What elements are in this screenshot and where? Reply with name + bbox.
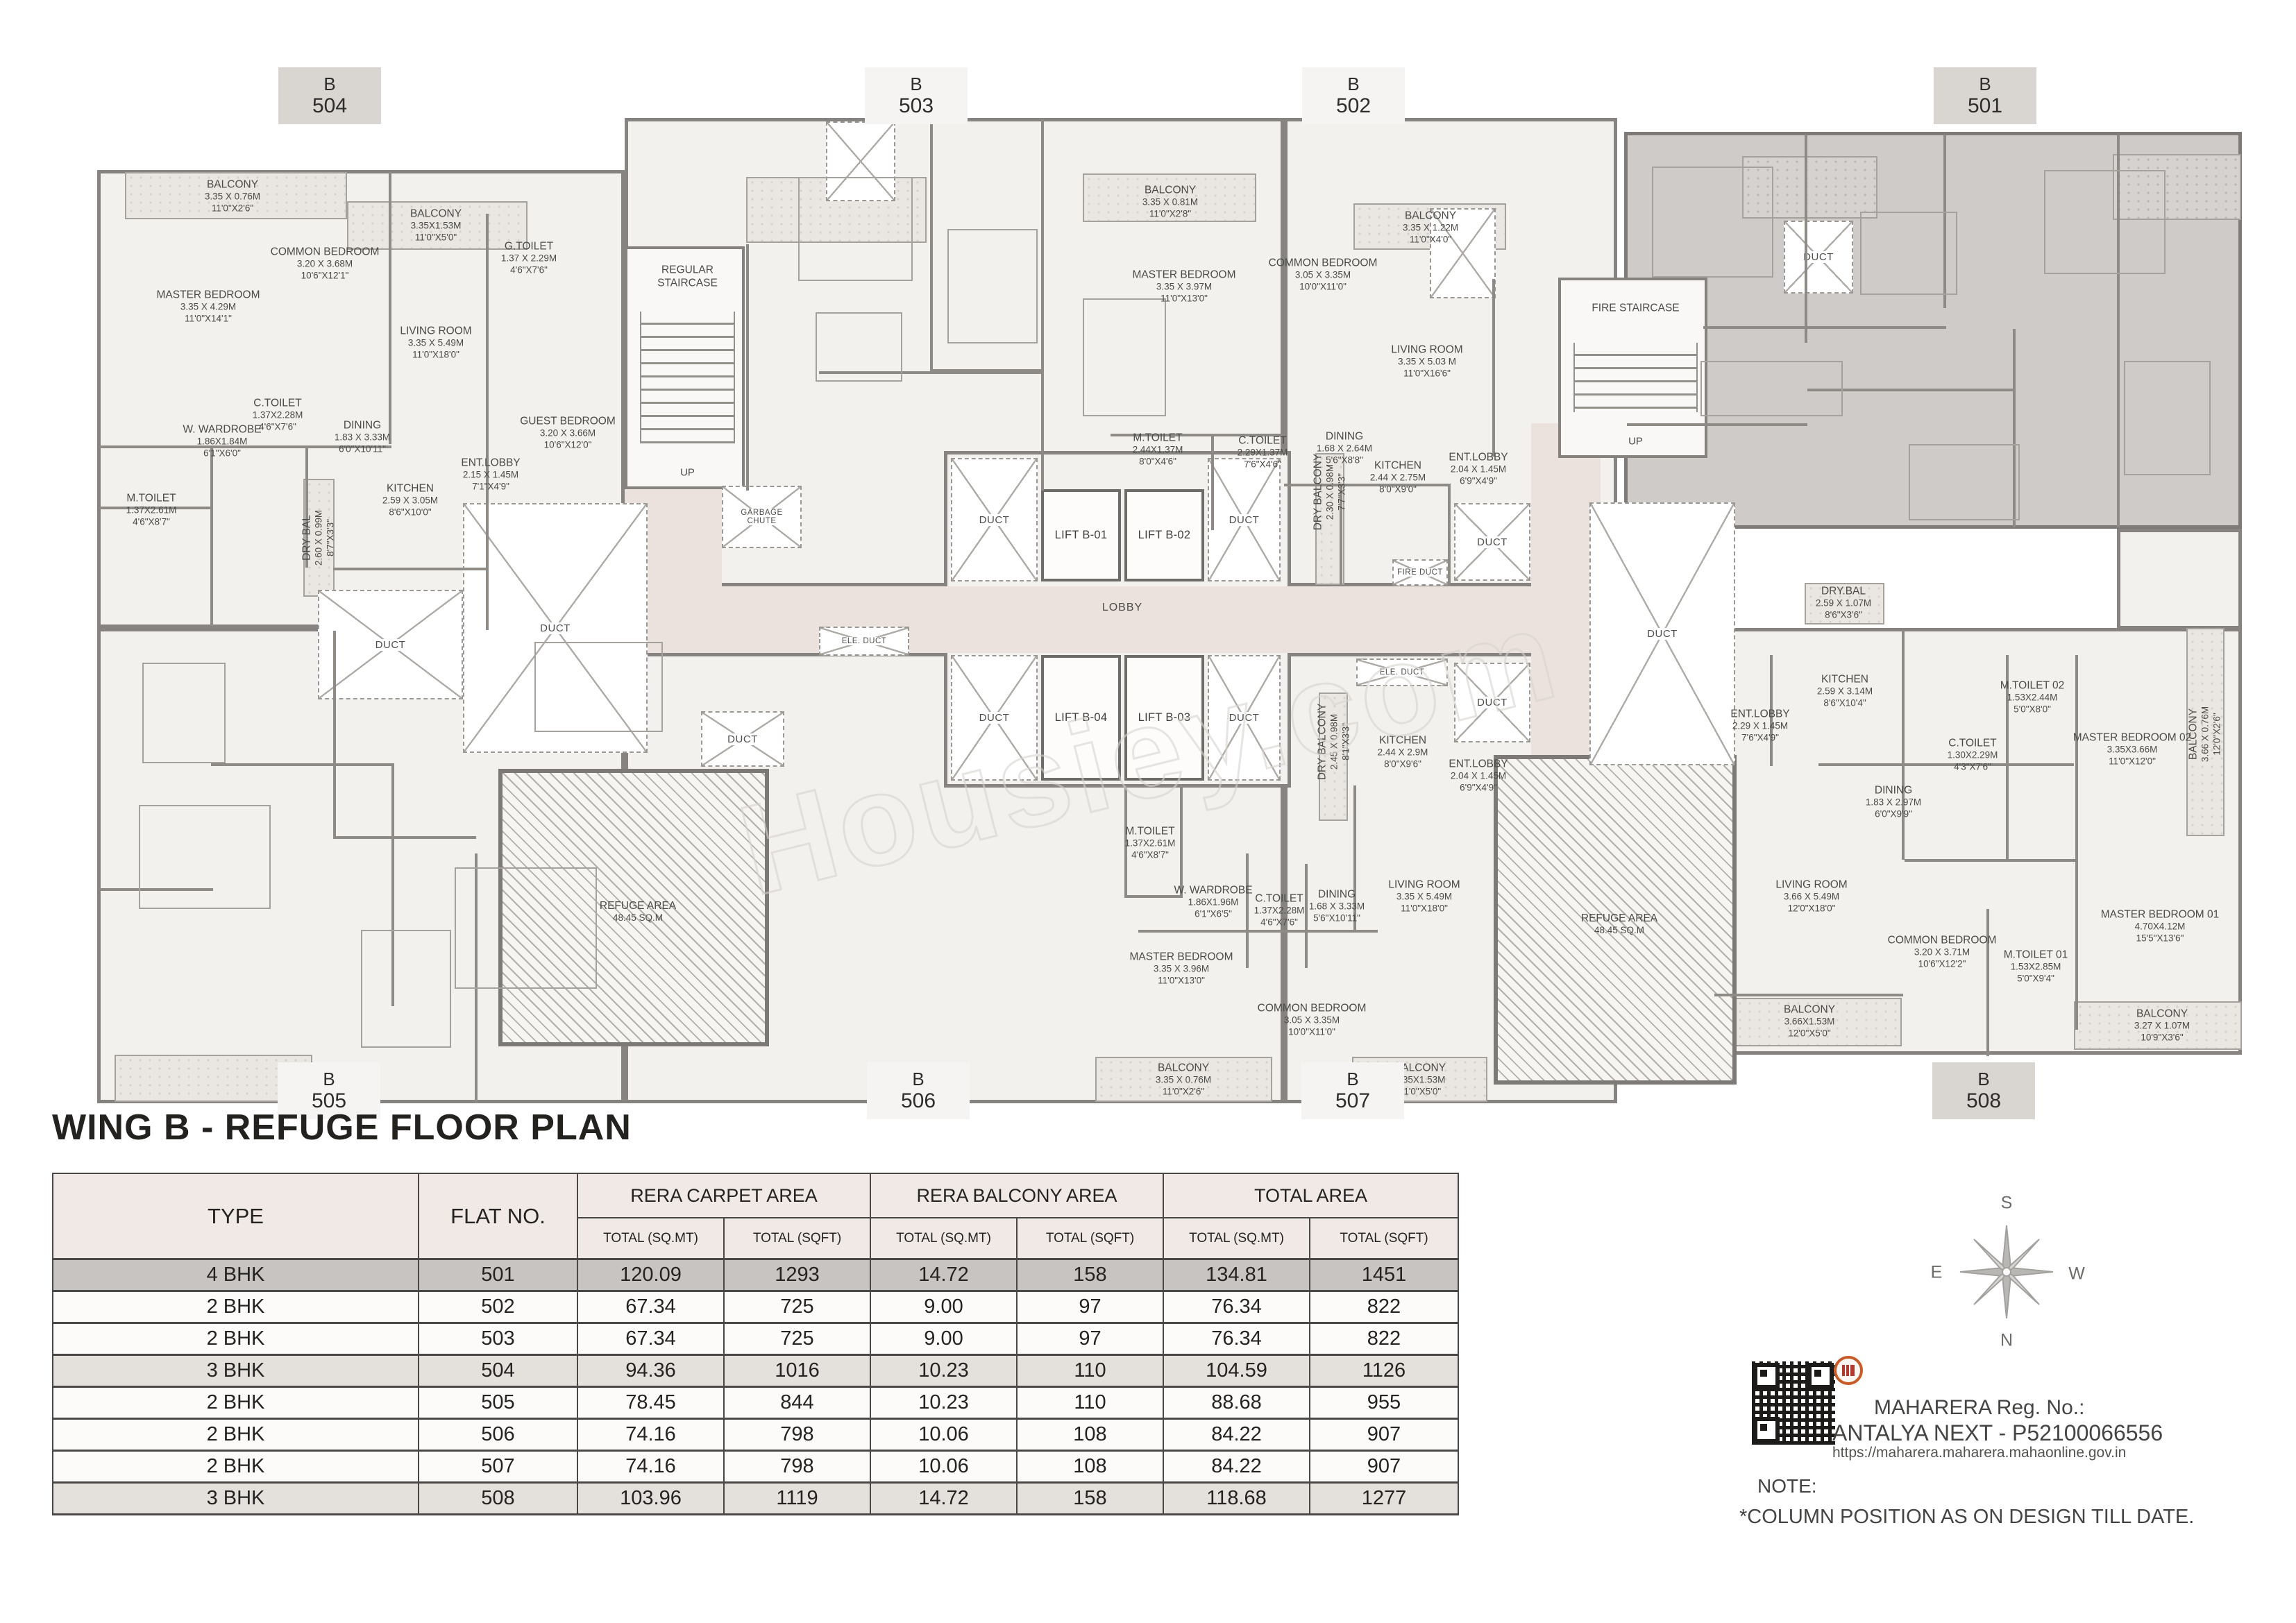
cell-area-value: 120.09: [577, 1259, 724, 1291]
wall-segment: [1805, 135, 1807, 343]
table-row-flat-502: 2 BHK50267.347259.009776.34822: [53, 1291, 1458, 1323]
wall-segment: [389, 172, 391, 444]
unit-marker-503: B503: [865, 67, 968, 124]
cell-area-value: 1277: [1310, 1483, 1458, 1515]
garbage-chute: GARBAGE CHUTE: [722, 486, 802, 548]
room-label-master-bedroom: MASTER BEDROOM3.35 X 3.96M11'0"X13'0": [1130, 950, 1233, 987]
wall-segment: [1041, 119, 1044, 491]
room-label-living-room: LIVING ROOM3.35 X 5.49M11'0"X18'0": [1388, 878, 1460, 915]
table-row-flat-506: 2 BHK50674.1679810.0610884.22907: [53, 1419, 1458, 1451]
cell-area-value: 1293: [724, 1259, 870, 1291]
note-label: NOTE:: [1757, 1475, 1817, 1497]
room-label-living-room: LIVING ROOM3.35 X 5.03 M11'0"X16'6": [1391, 343, 1462, 380]
compass-left: E: [1931, 1263, 1943, 1283]
maharera-seal-icon: [1834, 1356, 1863, 1385]
cell-type: 2 BHK: [53, 1451, 419, 1483]
wall-segment: [333, 568, 487, 570]
cell-area-value: 10.06: [870, 1419, 1017, 1451]
sub-header-sqmt: TOTAL (SQ.MT): [577, 1218, 724, 1259]
cell-area-value: 14.72: [870, 1259, 1017, 1291]
room-label-w-wardrobe: W. WARDROBE1.86X1.84M6'1"X6'0": [183, 423, 261, 459]
table-row-flat-507: 2 BHK50774.1679810.0610884.22907: [53, 1451, 1458, 1483]
cell-area-value: 108: [1017, 1419, 1163, 1451]
room-label-dining: DINING1.68 X 3.33M5'6"X10'11": [1309, 887, 1365, 924]
staircase-treads: [640, 312, 735, 443]
unit-marker-507: B507: [1301, 1062, 1404, 1119]
cell-area-value: 907: [1310, 1451, 1458, 1483]
refuge-area-label: REFUGE AREA48.45 SQ.M: [600, 899, 676, 924]
staircase-up-label: UP: [1628, 436, 1643, 448]
cell-area-value: 74.16: [577, 1419, 724, 1451]
room-label-master-bedroom-02: MASTER BEDROOM 023.35X3.66M11'0"X12'0": [2073, 731, 2192, 767]
room-label-m-toilet-02: M.TOILET 021.53X2.44M5'0"X8'0": [2000, 679, 2064, 715]
area-table: TYPEFLAT NO.RERA CARPET AREARERA BALCONY…: [52, 1173, 1459, 1515]
cell-type: 2 BHK: [53, 1323, 419, 1355]
cell-area-value: 798: [724, 1419, 870, 1451]
staircase-label: REGULAR STAIRCASE: [636, 264, 740, 291]
cell-flat-no: 505: [419, 1387, 577, 1419]
room-label-balcony: BALCONY3.35 X 0.76M11'0"X2'6": [1156, 1061, 1211, 1098]
cell-type: 2 BHK: [53, 1291, 419, 1323]
wall-segment: [1138, 930, 1378, 933]
room-label-common-bedroom: COMMON BEDROOM3.05 X 3.35M10'0"X11'0": [1269, 256, 1378, 293]
wall-segment: [1305, 864, 1308, 968]
duct-shaft: DUCT: [318, 590, 463, 699]
furniture-outline: [1083, 298, 1166, 416]
wall-segment: [1818, 763, 2074, 766]
duct-shaft: DUCT: [951, 458, 1038, 581]
duct-shaft: DUCT: [1454, 503, 1530, 581]
cell-area-value: 110: [1017, 1387, 1163, 1419]
cell-area-value: 74.16: [577, 1451, 724, 1483]
cell-area-value: 76.34: [1163, 1323, 1310, 1355]
duct-shaft: DUCT: [701, 711, 784, 767]
wall-segment: [1986, 909, 1989, 1056]
unit-block: [2117, 529, 2242, 629]
cell-area-value: 84.22: [1163, 1419, 1310, 1451]
furniture-outline: [798, 177, 913, 281]
qr-finder-icon: [1807, 1363, 1834, 1389]
wall-segment: [1211, 436, 1214, 530]
group-header-2: TOTAL AREA: [1163, 1173, 1458, 1218]
sub-header-sqft: TOTAL (SQFT): [1017, 1218, 1163, 1259]
lift-b-02: LIFT B-02: [1124, 489, 1204, 581]
col-header-flat-no: FLAT NO.: [419, 1173, 577, 1259]
cell-area-value: 1119: [724, 1483, 870, 1515]
room-label-dining: DINING1.83 X 3.33M6'0"X10'11": [335, 418, 390, 455]
room-label-ent-lobby: ENT.LOBBY2.15 X 1.45M7'1"X4'9": [461, 456, 520, 493]
table-row-flat-508: 3 BHK508103.96111914.72158118.681277: [53, 1483, 1458, 1515]
cell-area-value: 10.23: [870, 1387, 1017, 1419]
room-label-balcony: BALCONY3.35 X 0.76M11'0"X2'6": [205, 178, 260, 214]
cell-area-value: 84.22: [1163, 1451, 1310, 1483]
furniture-outline: [1909, 444, 2020, 520]
sub-header-sqmt: TOTAL (SQ.MT): [1163, 1218, 1310, 1259]
room-label-m-toilet-01: M.TOILET 011.53X2.85M5'0"X9'4": [2004, 948, 2068, 985]
wall-segment: [746, 244, 749, 491]
staircase: FIRE STAIRCASEUP: [1558, 278, 1707, 458]
wall-segment: [1703, 326, 1946, 329]
cell-area-value: 104.59: [1163, 1355, 1310, 1387]
furniture-outline: [139, 805, 271, 909]
lift-b-01: LIFT B-01: [1041, 489, 1121, 581]
cell-area-value: 88.68: [1163, 1387, 1310, 1419]
room-label-common-bedroom: COMMON BEDROOM3.20 X 3.68M10'6"X12'1": [271, 245, 380, 282]
room-label-c-toilet: C.TOILET1.37X2.28M4'6"X7'6": [253, 396, 303, 433]
cell-flat-no: 501: [419, 1259, 577, 1291]
furniture-outline: [142, 663, 226, 763]
cell-area-value: 798: [724, 1451, 870, 1483]
cell-area-value: 103.96: [577, 1483, 724, 1515]
cell-type: 3 BHK: [53, 1355, 419, 1387]
duct-shaft: DUCT: [1784, 221, 1853, 294]
cell-area-value: 725: [724, 1291, 870, 1323]
col-header-type: TYPE: [53, 1173, 419, 1259]
cell-area-value: 97: [1017, 1323, 1163, 1355]
room-label-kitchen: KITCHEN2.44 X 2.75M8'0"X9'0": [1370, 459, 1426, 495]
cell-area-value: 1016: [724, 1355, 870, 1387]
room-label-ent-lobby: ENT.LOBBY2.04 X 1.45M6'9"X4'9": [1449, 757, 1508, 794]
room-label-balcony: BALCONY3.27 X 1.07M10'9"X3'6": [2134, 1007, 2190, 1044]
wall-segment: [1902, 631, 1905, 860]
cell-type: 2 BHK: [53, 1419, 419, 1451]
maharera-reg-value: ANTALYA NEXT - P52100066556: [1832, 1420, 2163, 1446]
table-row-flat-503: 2 BHK50367.347259.009776.34822: [53, 1323, 1458, 1355]
cell-area-value: 10.06: [870, 1451, 1017, 1483]
wall-segment: [486, 214, 489, 445]
furniture-outline: [534, 642, 663, 732]
unit-marker-501: B501: [1934, 67, 2036, 124]
furniture-outline: [361, 930, 451, 1048]
table-row-flat-505: 2 BHK50578.4584410.2311088.68955: [53, 1387, 1458, 1419]
room-label-c-toilet: C.TOILET1.37X2.28M4'6"X7'6": [1254, 892, 1305, 928]
label-lobby: LOBBY: [1102, 602, 1142, 614]
room-label-ent-lobby: ENT.LOBBY2.29 X 1.45M7'6"X4'9": [1730, 707, 1789, 744]
cell-flat-no: 508: [419, 1483, 577, 1515]
cell-flat-no: 504: [419, 1355, 577, 1387]
fire-duct-shaft: FIRE DUCT: [1392, 559, 1448, 586]
room-label-balcony: BALCONY3.35X1.53M11'0"X5'0": [410, 207, 462, 244]
cell-area-value: 78.45: [577, 1387, 724, 1419]
compass-top: S: [2001, 1193, 2013, 1214]
page-title: WING B - REFUGE FLOOR PLAN: [52, 1107, 632, 1148]
furniture-outline: [1652, 167, 1773, 278]
cell-type: 4 BHK: [53, 1259, 419, 1291]
floor-plan: REFUGE AREA48.45 SQ.MREFUGE AREA48.45 SQ…: [0, 0, 2296, 1124]
furniture-outline: [455, 867, 597, 989]
wall-segment: [210, 445, 213, 626]
wall-segment: [1714, 994, 1903, 996]
cell-flat-no: 503: [419, 1323, 577, 1355]
furniture-outline: [2044, 170, 2166, 274]
group-header-1: RERA BALCONY AREA: [870, 1173, 1163, 1218]
cell-area-value: 67.34: [577, 1291, 724, 1323]
staircase-treads: [1573, 343, 1698, 412]
cell-area-value: 10.23: [870, 1355, 1017, 1387]
wall-segment: [1448, 486, 1451, 586]
wall-segment: [2075, 655, 2078, 1030]
wall-segment: [930, 369, 1043, 372]
furniture-outline: [816, 312, 902, 382]
table-row-flat-501: 4 BHK501120.09129314.72158134.811451: [53, 1259, 1458, 1291]
room-label-ent-lobby: ENT.LOBBY2.04 X 1.45M6'9"X4'9": [1449, 450, 1508, 487]
staircase-label: FIRE STAIRCASE: [1584, 301, 1688, 314]
cell-area-value: 725: [724, 1323, 870, 1355]
room-label-balcony: BALCONY3.35 X 0.81M11'0"X2'8": [1142, 183, 1198, 220]
cell-flat-no: 502: [419, 1291, 577, 1323]
wall-segment: [1905, 859, 2075, 862]
cell-area-value: 822: [1310, 1291, 1458, 1323]
furniture-outline: [1860, 212, 1957, 295]
sub-header-sqft: TOTAL (SQFT): [1310, 1218, 1458, 1259]
room-label-living-room: LIVING ROOM3.66 X 5.49M12'0"X18'0": [1775, 878, 1847, 915]
room-label-balcony: BALCONY3.66 X 0.76M12'0"X2'6": [2186, 706, 2223, 762]
refuge-area: REFUGE AREA48.45 SQ.M: [1494, 755, 1737, 1085]
cell-area-value: 907: [1310, 1419, 1458, 1451]
room-label-c-toilet: C.TOILET1.30X2.29M4'3"X7'6": [1948, 736, 1998, 773]
qr-code: [1749, 1359, 1838, 1447]
wall-segment: [211, 763, 393, 766]
compass: S N E W: [1948, 1213, 2066, 1331]
compass-bottom: N: [2000, 1331, 2013, 1351]
room-label-master-bedroom: MASTER BEDROOM3.35 X 4.29M11'0"X14'1": [157, 288, 260, 325]
sub-header-sqft: TOTAL (SQFT): [724, 1218, 870, 1259]
room-label-w-wardrobe: W. WARDROBE1.86X1.96M6'1"X6'5": [1174, 883, 1252, 920]
compass-rose-icon: [1948, 1213, 2066, 1331]
cell-area-value: 822: [1310, 1323, 1458, 1355]
unit-marker-508: B508: [1932, 1062, 2035, 1119]
room-label-dry-balcony: DRY BALCONY2.30 X 0.98M7'7"X3'3": [1311, 454, 1348, 531]
room-label-balcony: BALCONY3.35 X 1.22M11'0"X4'0": [1403, 209, 1458, 246]
staircase-up-label: UP: [680, 467, 695, 479]
ele-duct-shaft: ELE. DUCT: [819, 627, 909, 656]
maharera-reg-label: MAHARERA Reg. No.:: [1874, 1396, 2084, 1420]
group-header-0: RERA CARPET AREA: [577, 1173, 870, 1218]
furniture-outline: [947, 229, 1038, 343]
wall-segment: [930, 119, 933, 369]
cell-area-value: 158: [1017, 1259, 1163, 1291]
room-label-kitchen: KITCHEN2.59 X 3.05M8'6"X10'0": [382, 482, 438, 518]
unit-marker-506: B506: [867, 1062, 970, 1119]
cell-flat-no: 507: [419, 1451, 577, 1483]
cell-area-value: 67.34: [577, 1323, 724, 1355]
qr-finder-icon: [1753, 1417, 1780, 1443]
room-label-dining: DINING1.83 X 2.97M6'0"X9'9": [1866, 783, 1921, 820]
cell-type: 2 BHK: [53, 1387, 419, 1419]
cell-area-value: 9.00: [870, 1291, 1017, 1323]
duct-shaft: DUCT: [1208, 458, 1281, 581]
room-label-g-toilet: G.TOILET1.37 X 2.29M4'6"X7'6": [501, 239, 557, 276]
wall-segment: [333, 836, 476, 839]
cell-area-value: 108: [1017, 1451, 1163, 1483]
cell-area-value: 94.36: [577, 1355, 724, 1387]
room-label-guest-bedroom: GUEST BEDROOM3.20 X 3.66M10'6"X12'0": [520, 414, 616, 451]
furniture-outline: [1700, 361, 1843, 416]
cell-flat-no: 506: [419, 1419, 577, 1451]
refuge-area-label: REFUGE AREA48.45 SQ.M: [1581, 911, 1657, 936]
cell-area-value: 955: [1310, 1387, 1458, 1419]
cell-area-value: 1126: [1310, 1355, 1458, 1387]
wall-segment: [1492, 279, 1495, 457]
cell-area-value: 158: [1017, 1483, 1163, 1515]
compass-right: W: [2068, 1264, 2085, 1284]
cell-area-value: 110: [1017, 1355, 1163, 1387]
wall-segment: [1627, 423, 1807, 426]
room-label-m-toilet: M.TOILET2.44X1.37M8'0"X4'6": [1133, 431, 1183, 468]
furniture-outline: [2124, 361, 2211, 475]
duct-shaft: DUCT: [1589, 502, 1735, 765]
cell-area-value: 14.72: [870, 1483, 1017, 1515]
maharera-url: https://maharera.maharera.mahaonline.gov…: [1832, 1445, 2126, 1461]
cell-area-value: 844: [724, 1387, 870, 1419]
cell-area-value: 134.81: [1163, 1259, 1310, 1291]
room-label-living-room: LIVING ROOM3.35 X 5.49M11'0"X18'0": [400, 324, 471, 361]
unit-marker-504: B504: [278, 67, 381, 124]
room-label-m-toilet: M.TOILET1.37X2.61M4'6"X8'7": [126, 491, 177, 528]
room-label-master-bedroom-01: MASTER BEDROOM 014.70X4.12M15'5"X13'6": [2101, 908, 2220, 944]
room-label-c-toilet: C.TOILET2.29X1.37M7'6"X4'6": [1238, 434, 1288, 470]
cell-area-value: 76.34: [1163, 1291, 1310, 1323]
cell-area-value: 9.00: [870, 1323, 1017, 1355]
room-label-common-bedroom: COMMON BEDROOM3.05 X 3.35M10'0"X11'0": [1258, 1001, 1367, 1038]
cell-area-value: 1451: [1310, 1259, 1458, 1291]
room-label-kitchen: KITCHEN2.59 X 3.14M8'6"X10'4": [1817, 672, 1873, 709]
room-label-balcony: BALCONY3.66X1.53M12'0"X5'0": [1784, 1003, 1835, 1039]
room-label-dry-bal: DRY.BAL2.59 X 1.07M8'6"X3'6": [1816, 584, 1871, 621]
cell-area-value: 118.68: [1163, 1483, 1310, 1515]
staircase: REGULAR STAIRCASEUP: [625, 246, 745, 489]
wall-segment: [333, 631, 336, 839]
unit-marker-502: B502: [1302, 67, 1405, 124]
room-label-master-bedroom: MASTER BEDROOM3.35 X 3.97M11'0"X13'0": [1133, 268, 1236, 305]
qr-finder-icon: [1753, 1363, 1780, 1389]
table-row-flat-504: 3 BHK50494.36101610.23110104.591126: [53, 1355, 1458, 1387]
note-text: *COLUMN POSITION AS ON DESIGN TILL DATE.: [1739, 1506, 2194, 1529]
room-label-dry-bal: DRY BAL2.60 X 0.99M8'7"X3'3": [300, 510, 337, 566]
sub-header-sqmt: TOTAL (SQ.MT): [870, 1218, 1017, 1259]
cell-area-value: 97: [1017, 1291, 1163, 1323]
room-label-common-bedroom: COMMON BEDROOM3.20 X 3.71M10'6"X12'2": [1888, 933, 1997, 970]
cell-type: 3 BHK: [53, 1483, 419, 1515]
